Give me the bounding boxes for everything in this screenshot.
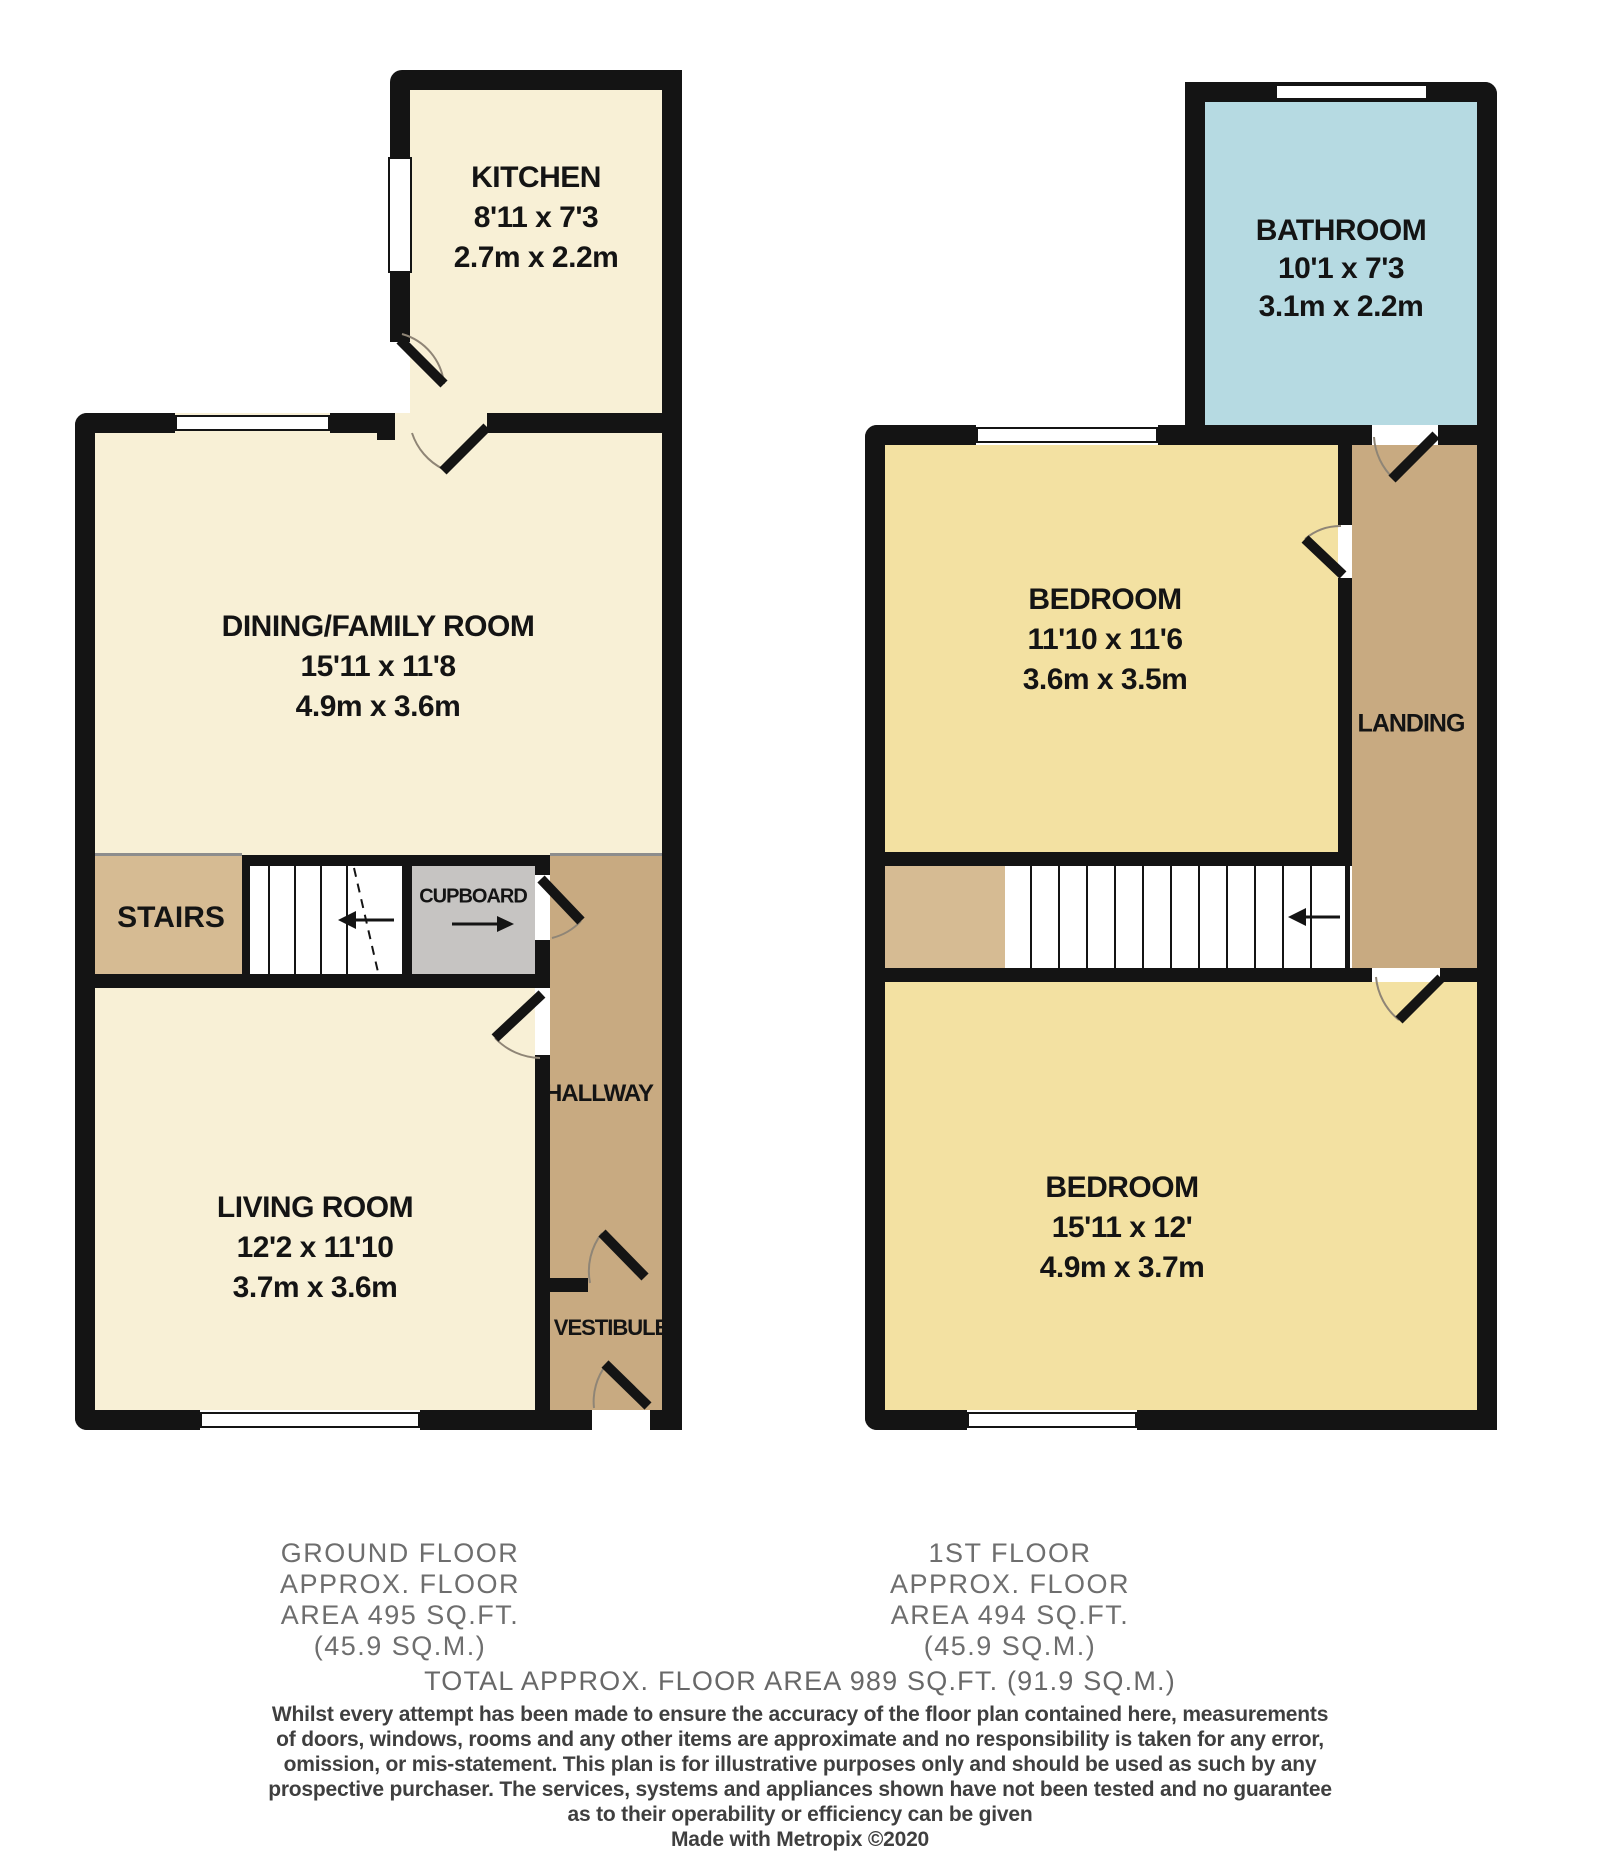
ground-floor-footer: GROUND FLOOR APPROX. FLOOR AREA 495 SQ.F… [280, 1538, 520, 1662]
first-footer-line2: APPROX. FLOOR [890, 1569, 1130, 1600]
ground-footer-line2: APPROX. FLOOR [280, 1569, 520, 1600]
ground-footer-line3: AREA 495 SQ.FT. [280, 1600, 520, 1631]
first-footer-line1: 1ST FLOOR [890, 1538, 1130, 1569]
first-footer-line3: AREA 494 SQ.FT. [890, 1600, 1130, 1631]
living-door-leaf [495, 994, 542, 1038]
vestibule-door-leaf [602, 1233, 645, 1277]
cupboard-door-leaf [541, 879, 581, 921]
door-arc [1305, 526, 1341, 539]
doors-and-arrows-overlay [0, 0, 1600, 1862]
door-arc [589, 1233, 602, 1283]
disclaimer-line1: Whilst every attempt has been made to en… [272, 1703, 1328, 1727]
stairs-arrow-head [338, 911, 356, 929]
first-floor-footer: 1ST FLOOR APPROX. FLOOR AREA 494 SQ.FT. … [890, 1538, 1130, 1662]
cupboard-arrow-head [497, 916, 514, 932]
front-door-leaf [605, 1364, 648, 1406]
floorplan-page: KITCHEN 8'11 x 7'3 2.7m x 2.2m DINING/FA… [0, 0, 1600, 1862]
first-stairs-arrow-head [1288, 908, 1306, 926]
bedroom1-door-leaf [1305, 539, 1343, 575]
disclaimer-line4: prospective purchaser. The services, sys… [268, 1778, 1332, 1802]
door-arc [1374, 437, 1394, 479]
total-floor-area: TOTAL APPROX. FLOOR AREA 989 SQ.FT. (91.… [424, 1666, 1176, 1697]
ground-footer-line1: GROUND FLOOR [280, 1538, 520, 1569]
first-footer-line4: (45.9 SQ.M.) [890, 1631, 1130, 1662]
door-arc [1376, 977, 1399, 1020]
disclaimer-line5: as to their operability or efficiency ca… [568, 1803, 1033, 1827]
door-arc [495, 1038, 540, 1058]
ground-footer-line4: (45.9 SQ.M.) [280, 1631, 520, 1662]
disclaimer-line3: omission, or mis-statement. This plan is… [284, 1753, 1317, 1777]
dining-door-leaf [443, 427, 487, 471]
bedroom2-door-leaf [1399, 978, 1441, 1020]
bathroom-door-leaf [1392, 435, 1436, 479]
disclaimer-line2: of doors, windows, rooms and any other i… [276, 1728, 1324, 1752]
door-arc [412, 433, 443, 469]
door-arc [594, 1365, 606, 1408]
metropix-credit: Made with Metropix ©2020 [671, 1828, 929, 1852]
